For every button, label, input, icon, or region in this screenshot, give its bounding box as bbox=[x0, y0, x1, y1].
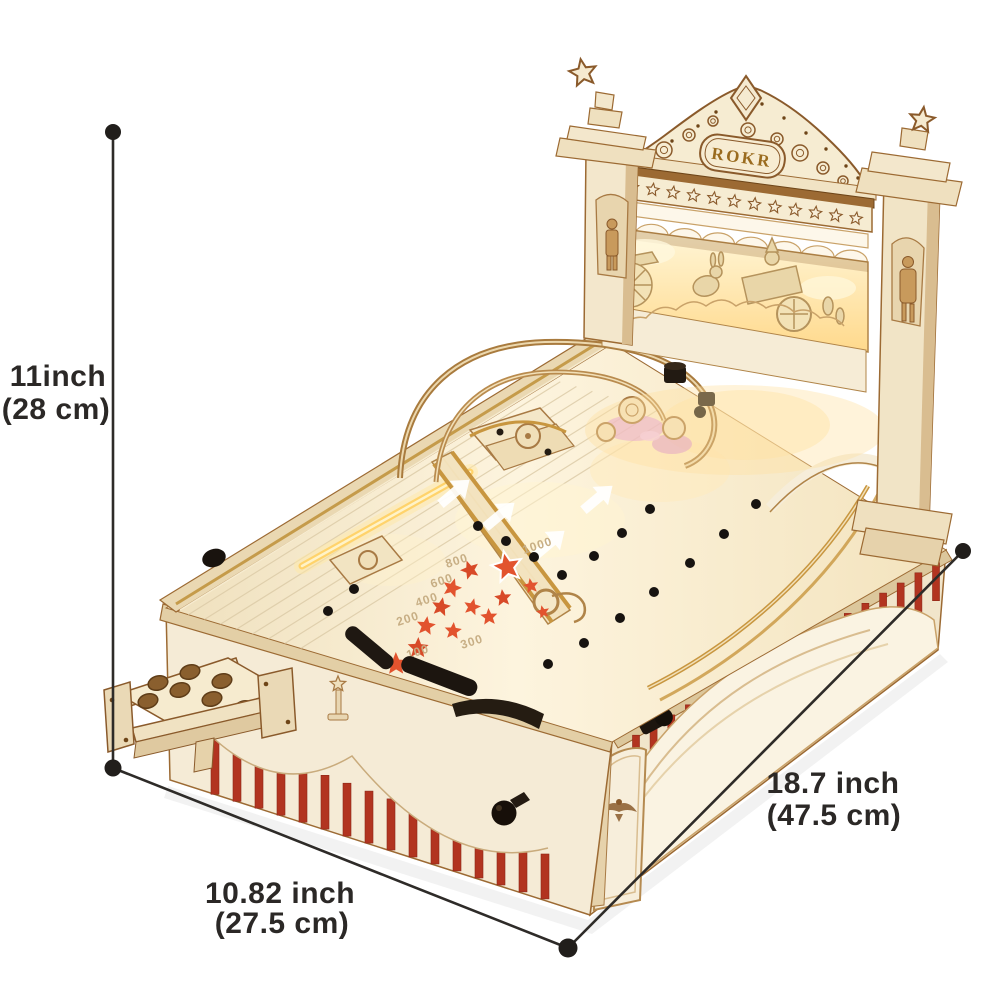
length-label-imperial: 18.7 inch bbox=[767, 767, 900, 800]
post bbox=[649, 587, 659, 597]
red-stripe bbox=[387, 799, 395, 850]
height-label-imperial: 11inch bbox=[10, 360, 106, 393]
post bbox=[579, 638, 589, 648]
pinball-machine-illustration: 1002003004006008001000 bbox=[0, 0, 1000, 1000]
post bbox=[557, 570, 567, 580]
dot bbox=[844, 164, 847, 167]
post bbox=[323, 606, 333, 616]
post bbox=[751, 499, 761, 509]
post bbox=[645, 504, 655, 514]
depth-label-metric: (27.5 cm) bbox=[215, 907, 350, 940]
red-stripe bbox=[321, 775, 329, 829]
length-label-metric: (47.5 cm) bbox=[767, 799, 902, 832]
red-stripe bbox=[365, 791, 373, 843]
post bbox=[473, 521, 483, 531]
dot bbox=[696, 124, 699, 127]
post bbox=[501, 536, 511, 546]
red-stripe bbox=[299, 768, 307, 823]
dot bbox=[670, 139, 673, 142]
dot bbox=[714, 110, 717, 113]
post bbox=[617, 528, 627, 538]
left-tower-star bbox=[569, 59, 595, 85]
dot bbox=[760, 102, 763, 105]
post bbox=[719, 529, 729, 539]
right-tower-star bbox=[910, 107, 935, 131]
post bbox=[529, 552, 539, 562]
red-stripe bbox=[541, 854, 549, 899]
post bbox=[349, 584, 359, 594]
post bbox=[685, 558, 695, 568]
red-stripe bbox=[343, 783, 351, 836]
height-label-metric: (28 cm) bbox=[2, 393, 111, 426]
post bbox=[543, 659, 553, 669]
dot bbox=[804, 131, 807, 134]
post bbox=[589, 551, 599, 561]
dot bbox=[782, 116, 785, 119]
backbox-glow bbox=[585, 385, 885, 475]
product-dimension-image: 1002003004006008001000 bbox=[0, 0, 1000, 1000]
post bbox=[615, 613, 625, 623]
dot bbox=[824, 147, 827, 150]
depth-label-imperial: 10.82 inch bbox=[205, 877, 355, 910]
